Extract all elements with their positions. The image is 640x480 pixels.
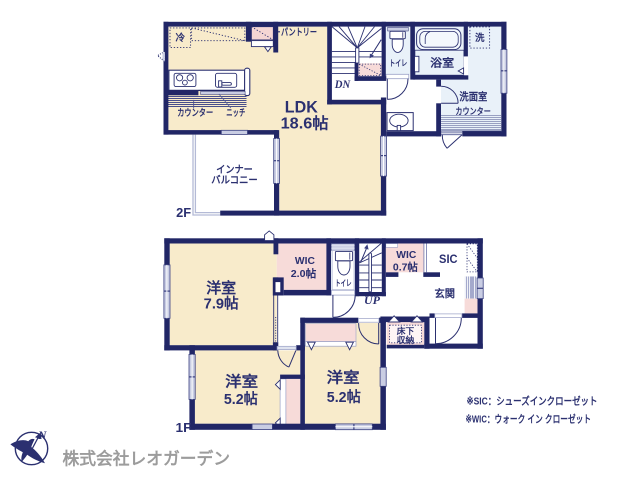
svg-text:洋室: 洋室 [225,373,258,391]
svg-text:DN: DN [334,77,352,91]
svg-text:WIC: WIC [295,255,315,267]
svg-text:2F: 2F [176,205,191,220]
svg-text:5.2帖: 5.2帖 [224,390,258,408]
svg-text:※WIC：ウォーク イン クローゼット: ※WIC：ウォーク イン クローゼット [466,412,592,425]
svg-text:N: N [37,430,47,442]
svg-text:トイレ: トイレ [335,278,352,288]
svg-text:冷: 冷 [176,32,186,44]
svg-text:洋室: 洋室 [206,279,236,297]
svg-text:18.6帖: 18.6帖 [281,113,330,132]
svg-text:浴室: 浴室 [430,56,454,70]
svg-text:洗面室: 洗面室 [459,90,487,103]
svg-text:トイレ: トイレ [389,58,407,68]
svg-text:洗: 洗 [475,32,485,44]
svg-text:バルコニー: バルコニー [211,174,258,186]
svg-text:LDK: LDK [285,99,318,117]
svg-text:7.9帖: 7.9帖 [204,295,239,313]
svg-text:2.0帖: 2.0帖 [291,267,317,280]
svg-text:5.2帖: 5.2帖 [327,388,361,406]
svg-text:洋室: 洋室 [327,369,360,387]
svg-text:玄関: 玄関 [434,287,455,300]
svg-text:カウンター: カウンター [177,107,213,119]
svg-text:ニッチ: ニッチ [226,108,245,119]
svg-text:WIC: WIC [396,249,416,261]
svg-text:インナー: インナー [216,164,253,176]
svg-text:0.7帖: 0.7帖 [393,261,418,274]
svg-text:※SIC：シューズインクローゼット: ※SIC：シューズインクローゼット [467,395,598,408]
svg-text:株式会社レオガーデン: 株式会社レオガーデン [63,448,231,468]
svg-text:収納: 収納 [397,335,415,345]
svg-text:1F: 1F [176,420,192,435]
svg-text:SIC: SIC [439,254,458,266]
svg-text:パントリー: パントリー [281,26,317,38]
svg-text:カウンター: カウンター [455,105,491,116]
